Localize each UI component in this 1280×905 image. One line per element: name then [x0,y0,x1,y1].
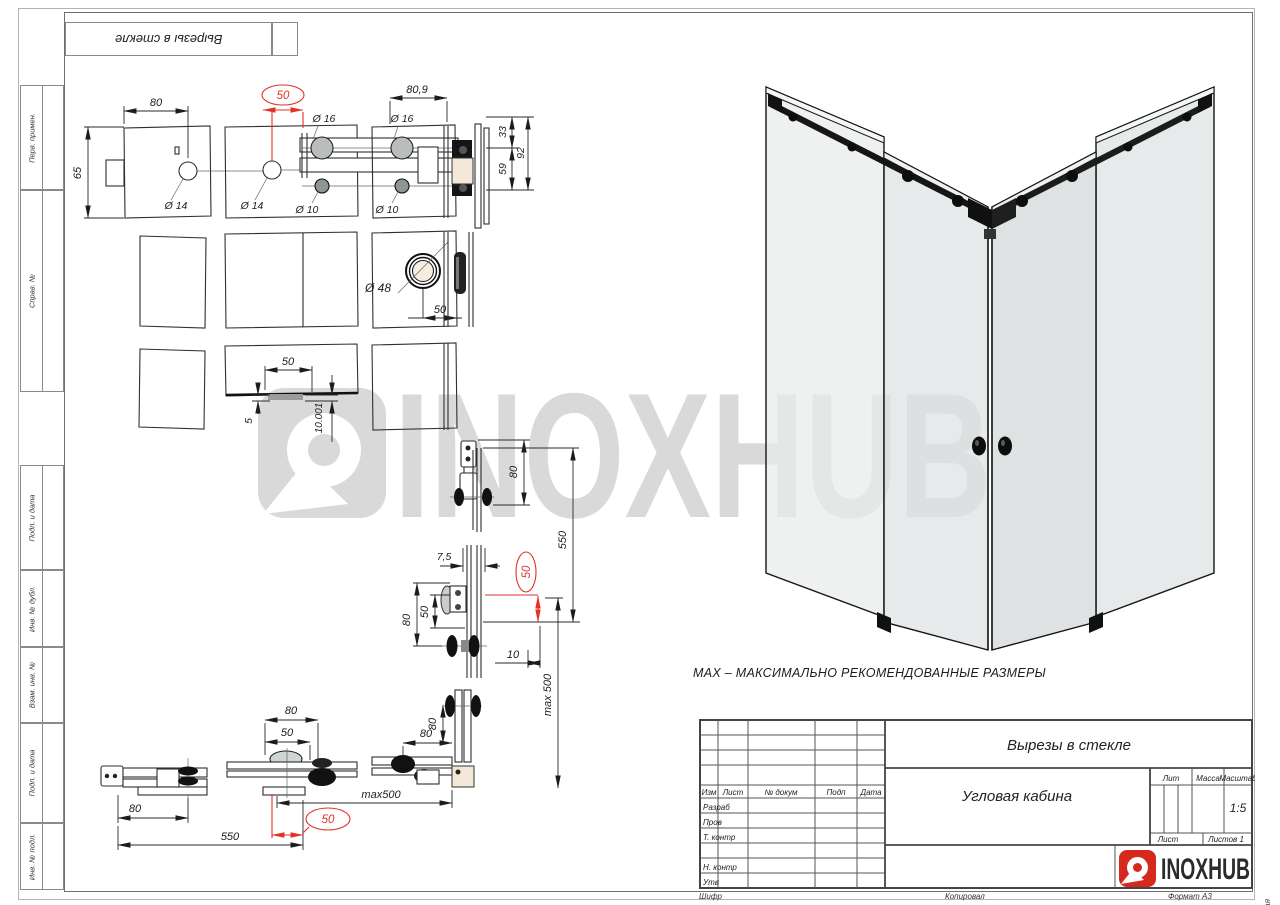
margin-label-text: Взам. инв. № [27,662,36,708]
back-stamp-side-cell [272,22,298,56]
margin-block-podp2: Подп. и дата [20,723,64,823]
red-callout-50-bottom: 50 [272,793,350,838]
view-top-rail: 80 65 Ø 14 Ø 14 50 Ø 16 Ø 16 Ø 10 Ø 1 [72,84,534,228]
doc-title: Вырезы в стекле [1007,737,1131,754]
assembly-title: Угловая кабина [961,788,1072,805]
col-doc: № докум [764,788,798,797]
margin-label: Перв. примен. [21,86,43,189]
glass-panel-left-door [884,152,988,650]
margin-label-text: Подп. и дата [27,494,36,541]
dim-max500-b: max500 [361,789,401,801]
door-knob-left [972,437,986,456]
col-list: Лист [722,788,744,797]
isometric-corner-cabin [740,60,1245,665]
row-tkontr: Т. контр [703,833,736,842]
dim-50-notch: 50 [282,356,295,368]
margin-block-podp1: Подп. и дата [20,465,64,570]
margin-label: Инв. № подл. [21,824,43,889]
inoxhub-logo-icon [1119,850,1156,887]
dim-550-b: 550 [221,831,240,843]
red-callout-50-mid: 50 [485,552,538,622]
dim-50-bm: 50 [281,727,294,739]
dim-d10-a: Ø 10 [295,204,319,216]
dim-80-9: 80,9 [406,84,427,96]
back-stamp-text: Вырезы в стекле [115,32,222,47]
dim-d48: Ø 48 [364,281,391,295]
footer-code-label: Шифр [699,892,722,901]
dim-59: 59 [497,163,509,175]
lit-label: Лит [1162,774,1180,783]
col-izm: Изм [702,788,717,797]
dim-92: 92 [515,147,527,159]
col-podp: Подп [826,788,846,797]
dim-d14-b: Ø 14 [240,200,264,212]
view-glass-notch: 50 5 10.001 [139,343,457,442]
dim-80-top: 80 [150,97,163,109]
margin-block-sprav: Справ. № [20,190,64,392]
dim-5: 5 [243,418,255,424]
dim-80-bch: 80 [420,728,433,740]
scale-label: Масштаб [1219,774,1255,783]
red-dim-50: 50 [277,90,290,102]
title-block: Вырезы в стекле Угловая кабина Изм Лист … [698,718,1255,892]
orthographic-views: 80 65 Ø 14 Ø 14 50 Ø 16 Ø 16 Ø 10 Ø 1 [65,80,710,895]
file-note: Файл 806-401-U_Комплект душевой (400 SSS… [1262,899,1272,905]
margin-label-text: Инв. № дубл. [27,585,36,631]
margin-label: Подп. и дата [21,724,43,822]
dim-d10-b: Ø 10 [375,204,399,216]
door-knob-right [998,437,1012,456]
col-data: Дата [859,788,882,797]
dim-d14-a: Ø 14 [164,200,188,212]
dim-80-carriage: 80 [508,465,520,478]
margin-label: Инв. № дубл. [21,571,43,646]
dim-550-v: 550 [557,530,569,549]
view-knob-hole: Ø 48 50 [140,231,473,328]
glass-panel-right-fixed [1096,87,1214,617]
margin-label: Подп. и дата [21,466,43,569]
row-nkontr: Н. контр [703,863,737,872]
glass-panel-left-fixed [766,87,884,617]
list-label: Лист [1157,835,1179,844]
footer-format-label: Формат А3 [1168,892,1212,901]
dim-50-lower: 50 [419,605,431,618]
margin-label-text: Перв. примен. [27,113,36,163]
view-bottom-mid-clamp: 80 50 [227,705,357,798]
max-note: MAX – МАКСИМАЛЬНО РЕКОМЕНДОВАННЫЕ РАЗМЕР… [693,666,1046,680]
view-bottom-corner-clamp: 80 80 max500 [277,690,482,808]
view-carriage-lower: 7,5 50 50 80 10 [401,545,580,788]
red-dim-50-mid: 50 [521,565,533,578]
dim-d16-a: Ø 16 [312,113,336,125]
dim-80-bm: 80 [285,705,298,717]
dim-10: 10 [507,649,520,661]
margin-label-text: Справ. № [27,274,36,308]
margin-label: Взам. инв. № [21,648,43,722]
margin-label-text: Инв. № подл. [27,833,36,880]
margin-label: Справ. № [21,191,43,391]
dim-80-bl: 80 [129,803,142,815]
margin-block-inv-podl: Инв. № подл. [20,823,64,890]
scale-value: 1:5 [1230,801,1247,815]
dim-50-knob: 50 [434,304,447,316]
drawing-sheet: INOXHUB Вырезы в стекле Перв. примен. Сп… [0,0,1280,905]
glass-panel-right-door [992,152,1096,650]
back-stamp-cell: Вырезы в стекле [65,22,272,56]
row-utv: Утв [702,878,719,887]
margin-block-inv-dubl: Инв. № дубл. [20,570,64,647]
red-callout-50-top: 50 [262,85,304,161]
red-dim-50-bottom: 50 [322,814,335,826]
row-razrab: Разраб [703,803,730,812]
dim-d16-b: Ø 16 [390,113,414,125]
footer-copied-label: Копировал [945,892,985,901]
dim-max500-v: max 500 [542,673,554,716]
dim-33: 33 [497,126,509,138]
row-prov: Пров [703,818,722,827]
dim-7-5: 7,5 [437,551,452,563]
massa-label: Масса [1196,774,1220,783]
listov-label: Листов 1 [1207,835,1244,844]
margin-block-vzam: Взам. инв. № [20,647,64,723]
dim-10-001: 10.001 [314,403,325,434]
margin-label-text: Подп. и дата [27,750,36,797]
dim-65: 65 [72,166,84,179]
margin-block-perv-primen: Перв. примен. [20,85,64,190]
dim-80-lower: 80 [401,613,413,626]
inoxhub-logo-text: INOXHUB [1161,853,1250,886]
